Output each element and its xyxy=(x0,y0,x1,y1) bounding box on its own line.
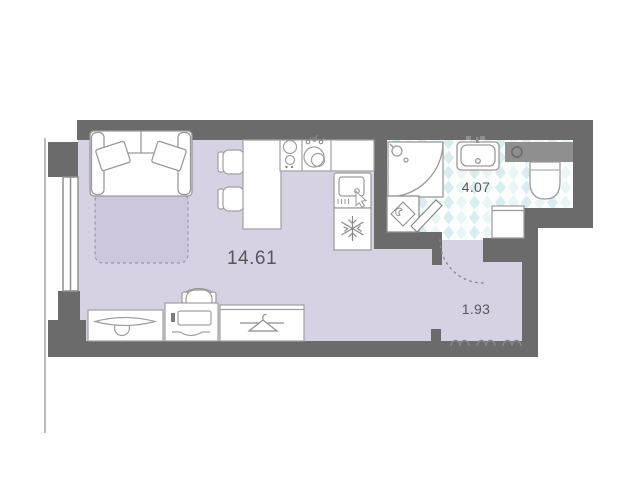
bathroom-cabinet xyxy=(492,206,524,238)
wall-entrance-stub xyxy=(431,329,441,341)
wall-bottom xyxy=(48,341,538,357)
sofa-bed xyxy=(90,131,192,196)
chair-seat xyxy=(223,150,244,174)
hob-knob xyxy=(285,166,287,168)
hob-knob xyxy=(291,166,293,168)
dining-chair-1 xyxy=(218,150,244,174)
burner-large xyxy=(284,141,297,154)
wardrobe xyxy=(220,305,304,341)
pull-out-bed-zone xyxy=(95,193,188,263)
desk xyxy=(165,303,218,341)
desk-monitor xyxy=(178,311,211,325)
shower-tray xyxy=(388,142,443,197)
dining-table xyxy=(243,140,281,229)
toilet-bowl xyxy=(530,162,560,199)
window xyxy=(63,177,78,291)
wall-top-left-block xyxy=(48,142,78,177)
cistern-shelf xyxy=(505,142,573,162)
chair-seat xyxy=(223,187,244,211)
wall-door-jamb xyxy=(432,232,442,265)
wall-hallway-right xyxy=(522,228,538,357)
tv-stand xyxy=(88,310,163,341)
hallway-area-label: 1.93 xyxy=(462,301,490,317)
dining-chair-2 xyxy=(218,187,244,211)
living-room-area-label: 14.61 xyxy=(227,248,277,269)
oven xyxy=(334,173,371,208)
wall-left-pier xyxy=(58,291,80,321)
desk-speaker xyxy=(171,313,175,322)
floor-plan: 14.61 4.07 1.93 xyxy=(0,0,638,478)
wall-right xyxy=(573,120,593,228)
floor-plan-canvas: 14.61 4.07 1.93 xyxy=(0,0,638,478)
kitchen-counter xyxy=(280,135,374,171)
bathroom-area-label: 4.07 xyxy=(462,179,490,195)
wall-bottom-left-block xyxy=(48,320,86,342)
oven-window xyxy=(339,177,364,196)
shower-cabin xyxy=(388,142,443,197)
refrigerator xyxy=(334,208,371,250)
wall-bathroom-bottom-left xyxy=(381,232,436,249)
burner-small xyxy=(286,156,295,165)
